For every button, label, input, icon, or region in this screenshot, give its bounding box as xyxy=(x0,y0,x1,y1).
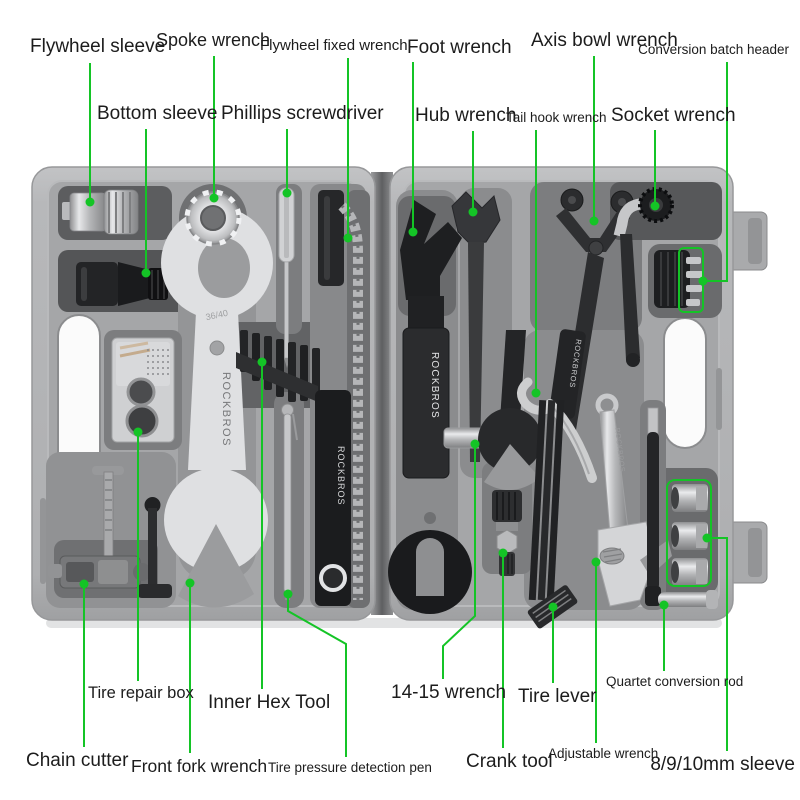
label-socket-wrench: Socket wrench xyxy=(611,106,736,126)
label-hub-wrench: Hub wrench xyxy=(415,106,516,126)
label-flywheel-fixed-wrench: Flywheel fixed wrench xyxy=(260,38,408,54)
label-tire-lever: Tire lever xyxy=(518,687,596,707)
tire-repair-box-tool xyxy=(112,338,174,442)
label-chain-cutter: Chain cutter xyxy=(26,751,128,771)
label-crank-tool: Crank tool xyxy=(466,752,553,772)
case-clasp-bottom xyxy=(728,522,767,583)
label-14-15-wrench: 14-15 wrench xyxy=(391,683,506,703)
bottom-sleeve-tool xyxy=(76,262,168,306)
label-front-fork-wrench: Front fork wrench xyxy=(131,757,267,775)
hex-holder-brand-marking: ROCKBROS xyxy=(336,446,346,506)
label-inner-hex-tool: Inner Hex Tool xyxy=(208,693,330,713)
flywheel-sleeve-tool xyxy=(62,190,138,234)
label-tire-repair-box: Tire repair box xyxy=(88,685,194,702)
label-adjustable-wrench: Adjustable wrench xyxy=(548,747,658,761)
label-tail-hook-wrench: Tail hook wrench xyxy=(506,111,607,125)
label-foot-wrench: Foot wrench xyxy=(407,38,512,58)
label-conversion-batch-header: Conversion batch header xyxy=(638,43,789,57)
label-spoke-wrench: Spoke wrench xyxy=(156,31,270,50)
wrench-brand-marking: ROCKBROS xyxy=(220,372,232,447)
tool-kit-diagram: 36/40 ROCKBROS ROCKBROS xyxy=(0,0,800,800)
label-phillips-screwdriver: Phillips screwdriver xyxy=(221,104,384,124)
label-quartet-conversion-rod: Quartet conversion rod xyxy=(606,675,743,689)
label-bottom-sleeve: Bottom sleeve xyxy=(97,104,217,124)
label-tire-pressure-pen: Tire pressure detection pen xyxy=(268,761,432,775)
label-8-9-10mm-sleeve: 8/9/10mm sleeve xyxy=(650,755,795,775)
foot-wrench-brand-marking: ROCKBROS xyxy=(429,352,440,419)
sleeve-8-9-10-tool xyxy=(671,484,708,586)
left-handle-hole xyxy=(58,315,100,473)
label-flywheel-sleeve: Flywheel sleeve xyxy=(30,37,165,57)
case-clasp-top xyxy=(728,212,767,270)
right-handle-hole xyxy=(664,318,706,448)
inner-hex-holder-bar: ROCKBROS xyxy=(315,390,351,606)
